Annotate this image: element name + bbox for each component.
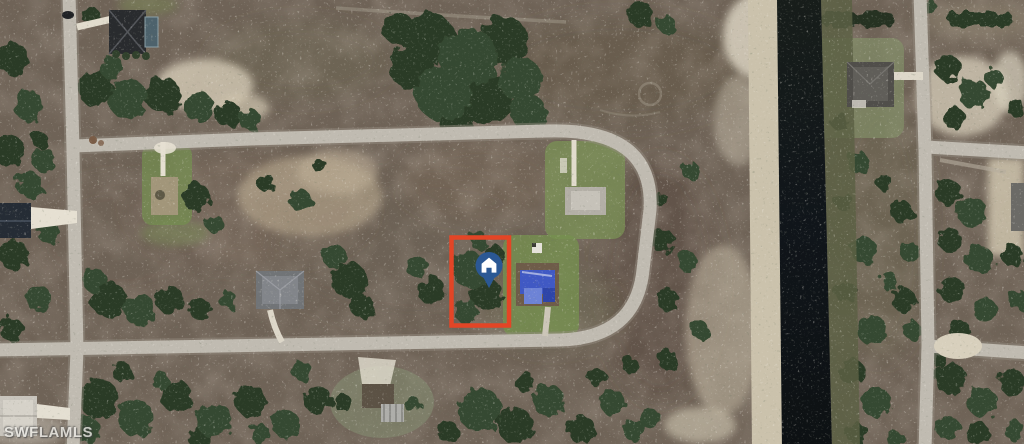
watermark: SWFLAMLS [4, 424, 93, 441]
texture-overlay [0, 0, 1024, 444]
satellite-map-image [0, 0, 1024, 444]
satellite-map: SWFLAMLS [0, 0, 1024, 444]
